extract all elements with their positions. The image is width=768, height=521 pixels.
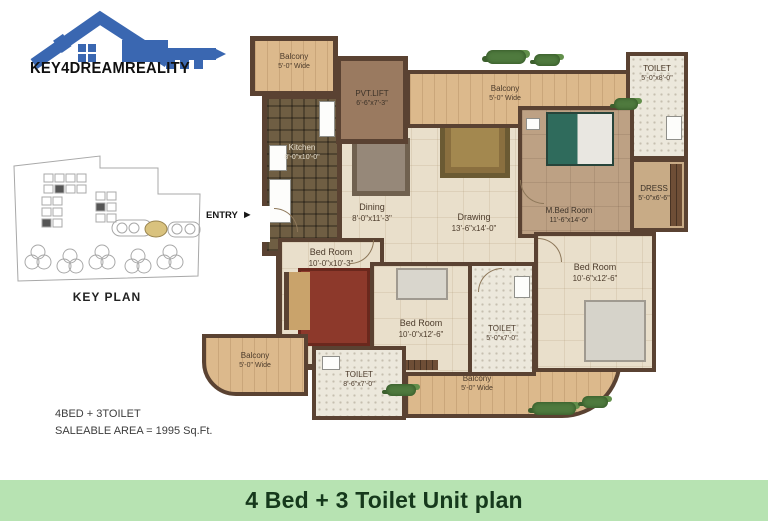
entry-opening xyxy=(258,206,270,242)
room-dims: 5'-0"x7'-0" xyxy=(472,334,532,343)
bed xyxy=(396,268,448,300)
room-master-bedroom: M.Bed Room 11'-6"x14'-0" xyxy=(518,106,634,238)
room-dims: 11'-6"x14'-0" xyxy=(508,216,630,225)
dining-rug xyxy=(352,138,410,196)
room-private-lift: PVT.LIFT 6'-6"x7'-3" xyxy=(336,56,408,144)
shrub-icon xyxy=(534,54,560,66)
room-name: PVT.LIFT xyxy=(341,89,403,99)
flyer-page: KEY4DREAMREALITY xyxy=(0,0,768,521)
room-balcony-bottom-left: Balcony 5'-0" Wide xyxy=(202,334,308,396)
shrub-icon xyxy=(614,98,638,110)
toilet-fixture xyxy=(322,356,340,370)
room-name: TOILET xyxy=(630,64,684,74)
key-plan-label: KEY PLAN xyxy=(8,290,206,304)
shrub-icon xyxy=(486,50,526,64)
room-dims: 8'-0"x10'-0" xyxy=(267,153,337,162)
toilet-fixture xyxy=(666,116,682,140)
room-dims: 10'-0"x10'-3" xyxy=(282,259,380,269)
key-plan-map xyxy=(8,148,206,290)
entry-label: ENTRY ► xyxy=(206,210,253,221)
brand-name: KEY4DREAMREALITY xyxy=(30,60,211,78)
shrub-icon xyxy=(532,402,576,415)
room-dims: 10'-0"x12'-6" xyxy=(374,330,468,340)
side-table xyxy=(526,118,540,130)
room-name: Bed Room xyxy=(538,262,652,274)
entry-text: ENTRY xyxy=(206,210,238,221)
room-name: Drawing xyxy=(432,212,516,224)
room-name: Dining xyxy=(336,202,408,214)
room-name: Balcony xyxy=(440,84,570,94)
shrub-icon xyxy=(582,396,608,408)
footer-bar: 4 Bed + 3 Toilet Unit plan xyxy=(0,480,768,521)
room-name: Balcony xyxy=(255,52,333,62)
room-name: Bed Room xyxy=(374,318,468,330)
shrub-icon xyxy=(386,384,416,396)
room-dims: 5'-0" Wide xyxy=(422,384,532,393)
room-dims: 6'-6"x7'-3" xyxy=(341,99,403,108)
room-name: M.Bed Room xyxy=(508,206,630,216)
room-name: Balcony xyxy=(206,351,304,361)
room-toilet-middle: TOILET 5'-0"x7'-0" xyxy=(468,262,536,376)
bed xyxy=(284,272,310,330)
entry-arrow-icon: ► xyxy=(242,210,253,221)
master-bed xyxy=(546,112,614,166)
room-dims: 13'-6"x14'-0" xyxy=(432,224,516,234)
bed xyxy=(584,300,646,362)
room-dress: DRESS 5'-0"x6'-6" xyxy=(626,158,688,232)
toilet-fixture xyxy=(514,276,530,298)
area-drawing: Drawing 13'-6"x14'-0" xyxy=(432,212,516,234)
summary-line-2: SALEABLE AREA = 1995 Sq.Ft. xyxy=(55,423,212,440)
unit-summary: 4BED + 3TOILET SALEABLE AREA = 1995 Sq.F… xyxy=(55,406,212,440)
room-name: Kitchen xyxy=(267,143,337,153)
room-dims: 5'-0" Wide xyxy=(440,94,570,103)
summary-line-1: 4BED + 3TOILET xyxy=(55,406,212,423)
floor-plan: Balcony 5'-0" Wide Kitchen 8'-0"x10'-0" … xyxy=(200,10,705,435)
room-balcony-top-left: Balcony 5'-0" Wide xyxy=(250,36,338,96)
room-name: TOILET xyxy=(316,370,402,380)
room-dims: 8'-0"x11'-3" xyxy=(336,214,408,224)
room-toilet-bottom: TOILET 8'-6"x7'-0" xyxy=(312,346,406,420)
stove xyxy=(319,101,335,137)
area-dining: Dining 8'-0"x11'-3" xyxy=(336,202,408,224)
room-dims: 5'-0" Wide xyxy=(255,62,333,71)
room-dims: 5'-0"x8'-0" xyxy=(630,74,684,83)
room-dims: 5'-0" Wide xyxy=(206,361,304,370)
room-dims: 10'-6"x12'-6" xyxy=(538,274,652,284)
plan-title: 4 Bed + 3 Toilet Unit plan xyxy=(245,487,523,514)
room-name: TOILET xyxy=(472,324,532,334)
